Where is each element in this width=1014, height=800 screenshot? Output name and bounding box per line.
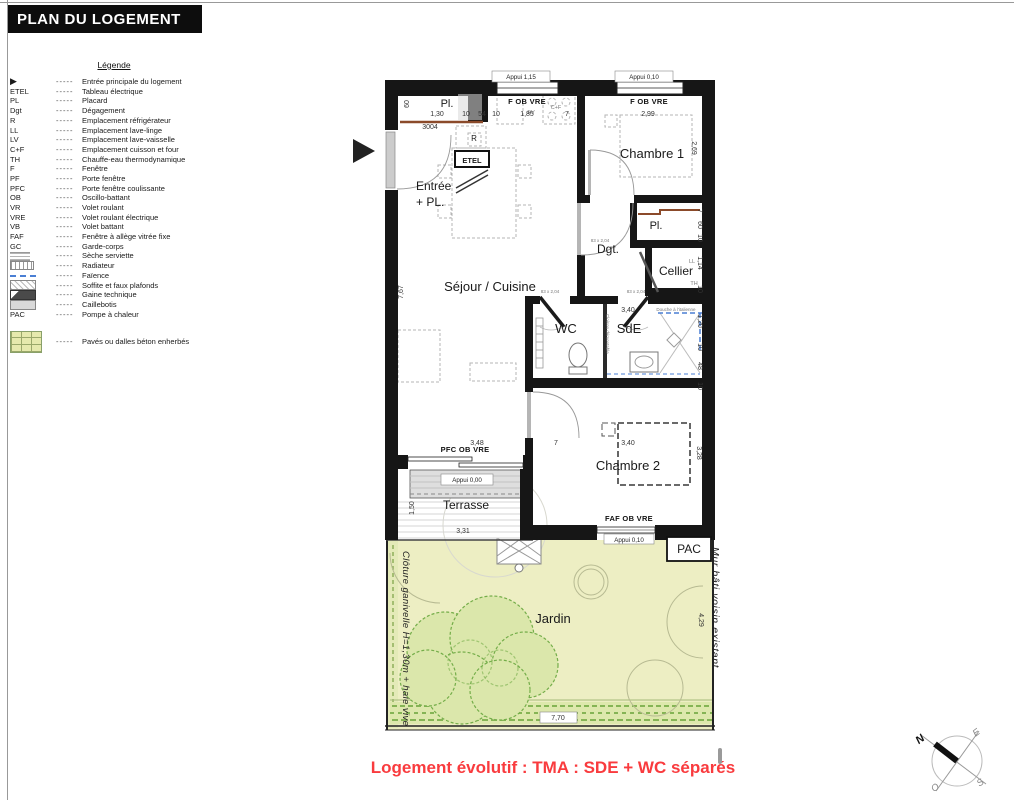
dim-7m: 7 xyxy=(554,440,558,447)
room-label-terrasse: Terrasse xyxy=(443,498,489,512)
window-label-faf: FAF OB VRE xyxy=(605,514,653,523)
dim-269: 2,69 xyxy=(690,141,697,155)
fridge-label: R xyxy=(471,134,477,143)
window-label-f-ob-vre-a: F OB VRE xyxy=(508,97,546,106)
door-size-sde: 83 x 2,04 xyxy=(627,289,646,294)
door-size-wc: 83 x 2,04 xyxy=(541,289,560,294)
furniture xyxy=(398,94,692,382)
dim-60-left: 60 xyxy=(404,100,411,108)
room-label-dgt: Dgt. xyxy=(597,242,619,256)
compass-e: E xyxy=(971,726,983,739)
dim-114: 1,14 xyxy=(696,256,703,270)
cloison-note: Cloison démontable xyxy=(605,314,610,354)
dim-340-sde: 3,40 xyxy=(621,307,635,314)
dim-328: 3,28 xyxy=(695,446,702,460)
dim-10r1: 10 xyxy=(696,234,703,242)
room-label-sejour: Séjour / Cuisine xyxy=(444,279,536,294)
compass-rose: N E S O xyxy=(913,726,986,794)
dim-150: 1,50 xyxy=(409,501,416,515)
ll-label: LL xyxy=(689,259,695,265)
room-label-cellier: Cellier xyxy=(659,264,693,278)
mur-voisin-note: Mur bâti voisin existant xyxy=(709,547,721,669)
appui-010-bottom: Appui 0,10 xyxy=(614,537,644,544)
dim-10a: 10 xyxy=(462,111,470,118)
compass-n: N xyxy=(913,732,927,747)
room-label-wc: WC xyxy=(555,321,577,336)
entry-arrow-icon xyxy=(353,139,375,163)
unit-number: 3004 xyxy=(422,124,438,131)
appui-115: Appui 1,15 xyxy=(506,74,536,81)
dim-10r4: 10 xyxy=(696,382,703,390)
compass-o: O xyxy=(929,781,942,795)
cloture-note: Clôture ganivelle H=1,30m + haie vive xyxy=(400,551,411,726)
window-label-f-ob-vre-b: F OB VRE xyxy=(630,97,668,106)
door-size-dgt: 83 x 2,04 xyxy=(591,238,610,243)
dim-429: 4,29 xyxy=(697,613,704,627)
appui-010-top: Appui 0,10 xyxy=(629,74,659,81)
dim-7a: 7 xyxy=(565,111,569,118)
room-label-sde: SdE xyxy=(617,321,642,336)
dim-10r3: 10 xyxy=(696,343,703,351)
room-label-jardin: Jardin xyxy=(535,611,570,626)
dim-299: 2,99 xyxy=(641,111,655,118)
dim-10b: 10 xyxy=(492,111,500,118)
dim-54: 54 xyxy=(478,111,486,118)
dim-7r: 7 xyxy=(696,209,703,213)
dim-331: 3,31 xyxy=(456,528,470,535)
floor-plan: Pl. Entrée + PL. Séjour / Cuisine Chambr… xyxy=(0,0,1014,800)
evolutif-note: Logement évolutif : TMA : SDE + WC sépar… xyxy=(371,758,735,778)
room-label-chambre1: Chambre 1 xyxy=(620,146,684,161)
room-label-pl1: Pl. xyxy=(441,98,454,110)
room-label-pl2: Pl. xyxy=(650,220,663,232)
dim-770: 7,70 xyxy=(551,715,565,722)
dim-340-ch2: 3,40 xyxy=(621,440,635,447)
dim-130: 1,30 xyxy=(430,111,444,118)
dim-10r2: 10 xyxy=(696,285,703,293)
room-label-chambre2: Chambre 2 xyxy=(596,458,660,473)
douche-label: Douche à l'italienne xyxy=(656,307,696,312)
etel-label: ETEL xyxy=(462,156,482,165)
room-label-entree-1: Entrée xyxy=(416,179,452,193)
pac-label: PAC xyxy=(677,542,701,556)
dim-348: 3,48 xyxy=(470,440,484,447)
appui-000: Appui 0,00 xyxy=(452,477,482,484)
dim-185: 1,85 xyxy=(520,111,534,118)
fixtures xyxy=(400,94,702,374)
cf-label: C+F xyxy=(551,105,562,111)
scrollbar-mark[interactable] xyxy=(718,748,722,764)
dim-60r: 60 xyxy=(696,221,703,229)
dim-120: 1,20 xyxy=(696,314,703,328)
chambre2-bed xyxy=(602,423,690,485)
dim-767: 7,67 xyxy=(398,285,405,299)
dim-48: 48 xyxy=(696,362,703,370)
room-label-entree-2: + PL. xyxy=(416,195,444,209)
